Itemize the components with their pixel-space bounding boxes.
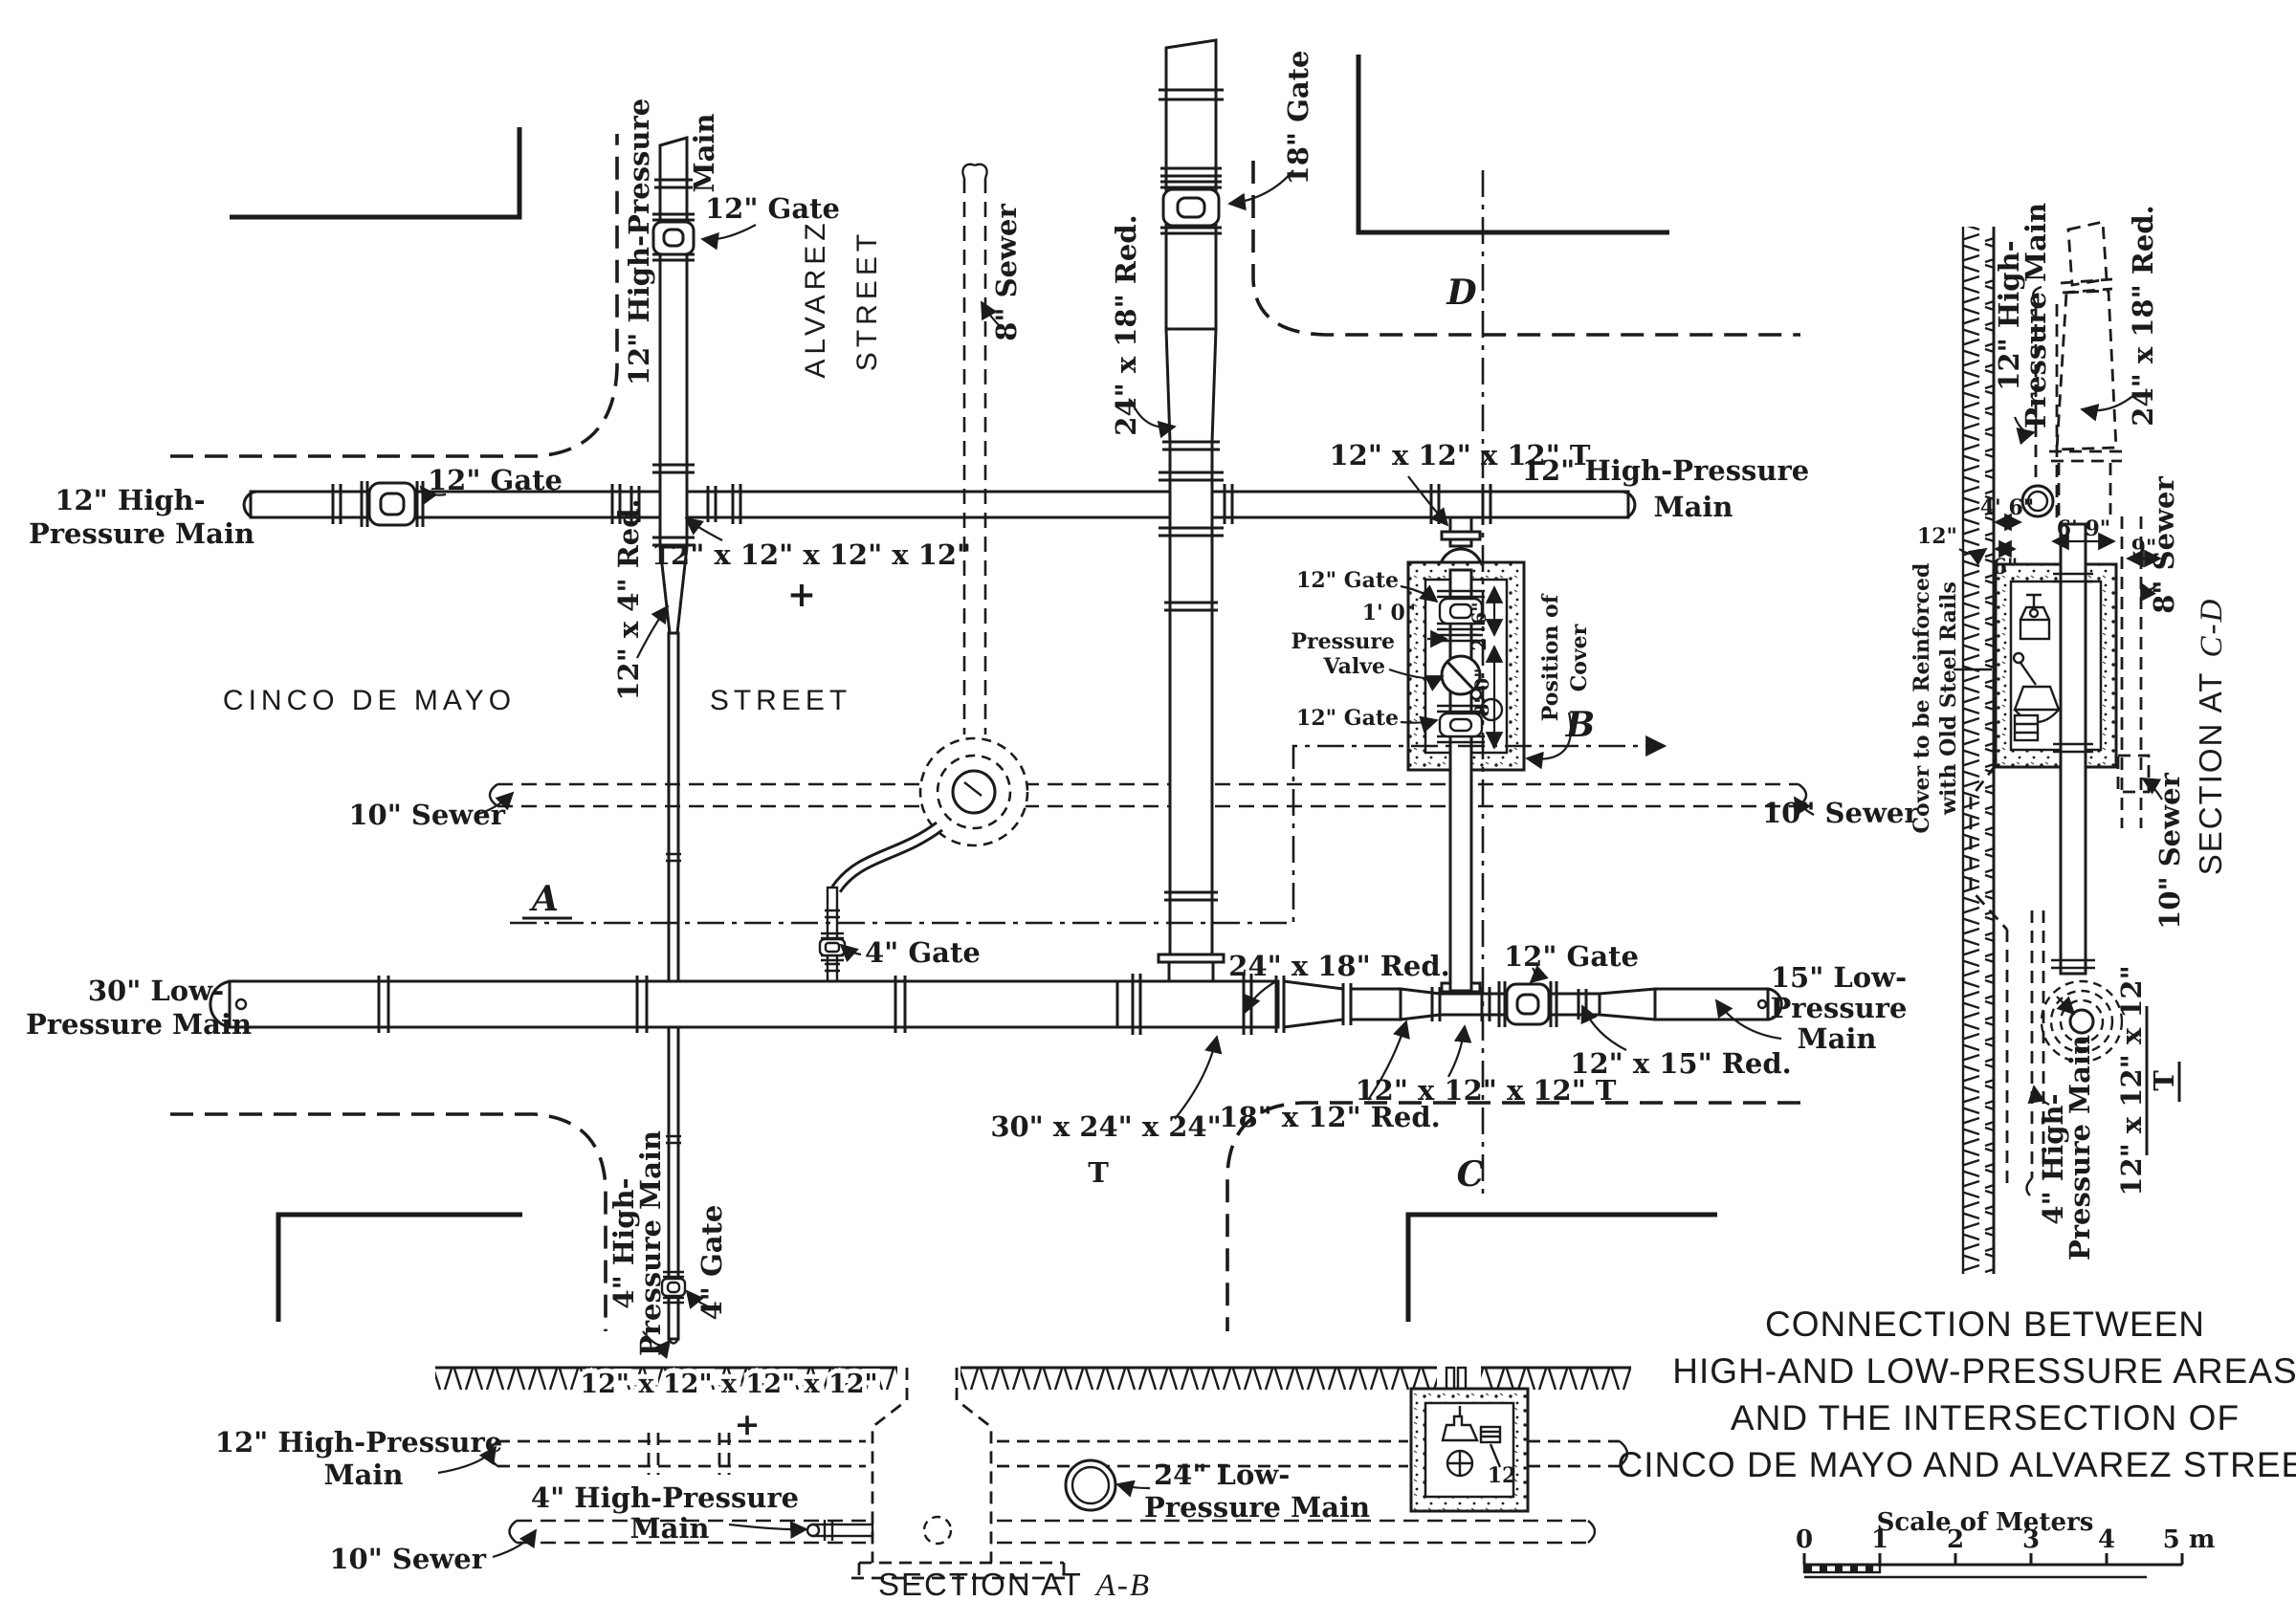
street-h: STREET xyxy=(710,685,851,716)
scale-tick-5: 5 m xyxy=(2163,1525,2216,1554)
label-ab-valve-size: 12 xyxy=(1488,1463,1517,1488)
title-line-2: HIGH-AND LOW-PRESSURE AREAS xyxy=(1672,1351,2296,1391)
label-sec-c: C xyxy=(1457,1154,1485,1195)
label-cd-cover-1: Cover to be Reinforced xyxy=(1910,563,1934,834)
label-cd-dim6-9: 6' 9" xyxy=(2057,516,2110,541)
label-sec-b: B xyxy=(1565,705,1595,745)
label-dim-2-6: 2' 6" xyxy=(1468,602,1490,650)
label-cd-dim12: 12" xyxy=(1917,524,1957,549)
label-dim-1-0: 1' 0" xyxy=(1362,601,1416,625)
label-sewer10-right: 10" Sewer xyxy=(1762,797,1919,829)
label-cd-sewer10: 10" Sewer xyxy=(2153,772,2186,929)
label-red12x15: 12" x 15" Red. xyxy=(1570,1047,1791,1080)
label-sewer8: 8" Sewer xyxy=(990,204,1023,341)
label-position-of-cover-1: Position of xyxy=(1538,593,1563,721)
label-ab-sewer10: 10" Sewer xyxy=(329,1543,486,1575)
section-cd-title-suffix: C-D xyxy=(2195,598,2229,658)
section-cd-title-prefix: SECTION AT xyxy=(2193,671,2228,876)
label-lp15-2: Pressure xyxy=(1770,992,1907,1024)
street-alvarez: ALVAREZ xyxy=(800,218,831,378)
label-hp12-right-2: Main xyxy=(1654,491,1733,523)
label-red24x18-low: 24" x 18" Red. xyxy=(1228,950,1449,982)
label-red24x18-top: 24" x 18" Red. xyxy=(1110,214,1142,435)
label-red12x4: 12" x 4" Red. xyxy=(612,498,645,700)
engineering-drawing: 12" High-Pressure Main 12" Gate ALVAREZ … xyxy=(0,0,2296,1623)
label-cd-cover-2: with Old Steel Rails xyxy=(1936,581,1961,816)
label-ab-lp24-1: 24" Low- xyxy=(1154,1459,1290,1491)
label-pressure-valve-1: Pressure xyxy=(1291,629,1396,654)
title-line-4: CINCO DE MAYO AND ALVAREZ STREETS xyxy=(1617,1445,2296,1484)
label-lp15-1: 15" Low- xyxy=(1771,961,1907,994)
label-ab-cross: 12" x 12" x 12" x 12" xyxy=(580,1370,877,1399)
label-sec-d: D xyxy=(1446,273,1476,313)
label-cd-hp4-2: Pressure Main xyxy=(2064,1035,2096,1261)
label-cd-dim6: 6" xyxy=(1993,555,2019,580)
label-sec-a: A xyxy=(529,879,559,919)
label-gate12-left: 12" Gate xyxy=(428,464,563,496)
street-alvarez-street: STREET xyxy=(851,230,883,371)
label-pressure-valve-2: Valve xyxy=(1323,654,1385,679)
title-line-3: AND THE INTERSECTION OF xyxy=(1731,1398,2240,1437)
label-gate18: 18" Gate xyxy=(1282,51,1314,186)
label-cd-dim9: 9" xyxy=(2131,536,2157,560)
label-gate4-bottom: 4" Gate xyxy=(695,1205,728,1321)
section-ab-title-prefix: SECTION AT xyxy=(878,1567,1083,1602)
section-ab-title: SECTION ATA-B xyxy=(878,1567,1151,1603)
label-hp12-alvarez-1: 12" High-Pressure xyxy=(623,99,655,385)
section-ab-title-suffix: A-B xyxy=(1094,1568,1151,1603)
label-cross12: 12" x 12" x 12" x 12" xyxy=(651,538,971,571)
street-cinco: CINCO DE MAYO xyxy=(223,685,516,716)
label-tee30-2: T xyxy=(1088,1156,1109,1189)
label-cd-tee12-2: T xyxy=(2148,1070,2180,1091)
label-sewer10-left: 10" Sewer xyxy=(348,799,505,831)
label-ab-hp4-1: 4" High-Pressure xyxy=(531,1481,799,1514)
label-cross12-plus: + xyxy=(787,575,816,615)
scale-label: Scale of Meters xyxy=(1877,1508,2094,1537)
label-ab-plus: + xyxy=(735,1406,761,1442)
label-gate12-box-top: 12" Gate xyxy=(1296,568,1399,593)
label-cd-red24x18: 24" x 18" Red. xyxy=(2127,205,2159,426)
label-hp12-right-1: 12" High-Pressure xyxy=(1522,454,1809,487)
label-ab-hp4-2: Main xyxy=(630,1512,710,1545)
label-hp12-alvarez-2: Main xyxy=(688,114,720,193)
label-cd-dim4-6: 4' 6" xyxy=(1980,495,2034,520)
scale-tick-2: 2 xyxy=(1947,1525,1964,1554)
label-cd-hp12-2: Pressure Main xyxy=(2020,203,2052,428)
label-ab-hp12-1: 12" High-Pressure xyxy=(215,1426,502,1459)
label-hp4-2: Pressure Main xyxy=(634,1130,667,1356)
label-hp12-left-2: Pressure Main xyxy=(29,517,254,550)
scale-tick-3: 3 xyxy=(2022,1525,2040,1554)
label-hp12-left-1: 12" High- xyxy=(55,484,205,516)
label-tee30-1: 30" x 24" x 24" xyxy=(990,1110,1221,1143)
scale-tick-1: 1 xyxy=(1871,1525,1888,1554)
label-lp30-2: Pressure Main xyxy=(26,1008,252,1041)
label-ab-hp12-2: Main xyxy=(324,1459,404,1491)
label-gate12-low: 12" Gate xyxy=(1504,940,1639,973)
label-gate4-mid: 4" Gate xyxy=(865,936,981,969)
title-line-1: CONNECTION BETWEEN xyxy=(1765,1305,2205,1344)
section-cd-title: SECTION ATC-D xyxy=(2193,598,2229,876)
label-ab-lp24-2: Pressure Main xyxy=(1144,1491,1370,1524)
label-position-of-cover-2: Cover xyxy=(1567,624,1592,691)
label-dim-8-0: 8' 0" xyxy=(1470,668,1493,716)
scale-tick-0: 0 xyxy=(1796,1525,1813,1554)
label-gate12-box-bottom: 12" Gate xyxy=(1296,706,1399,731)
scale-tick-4: 4 xyxy=(2098,1525,2115,1554)
label-lp30-1: 30" Low- xyxy=(88,975,224,1007)
label-lp15-3: Main xyxy=(1798,1022,1877,1055)
label-cd-tee12-1: 12" x 12" x 12" xyxy=(2115,965,2148,1195)
